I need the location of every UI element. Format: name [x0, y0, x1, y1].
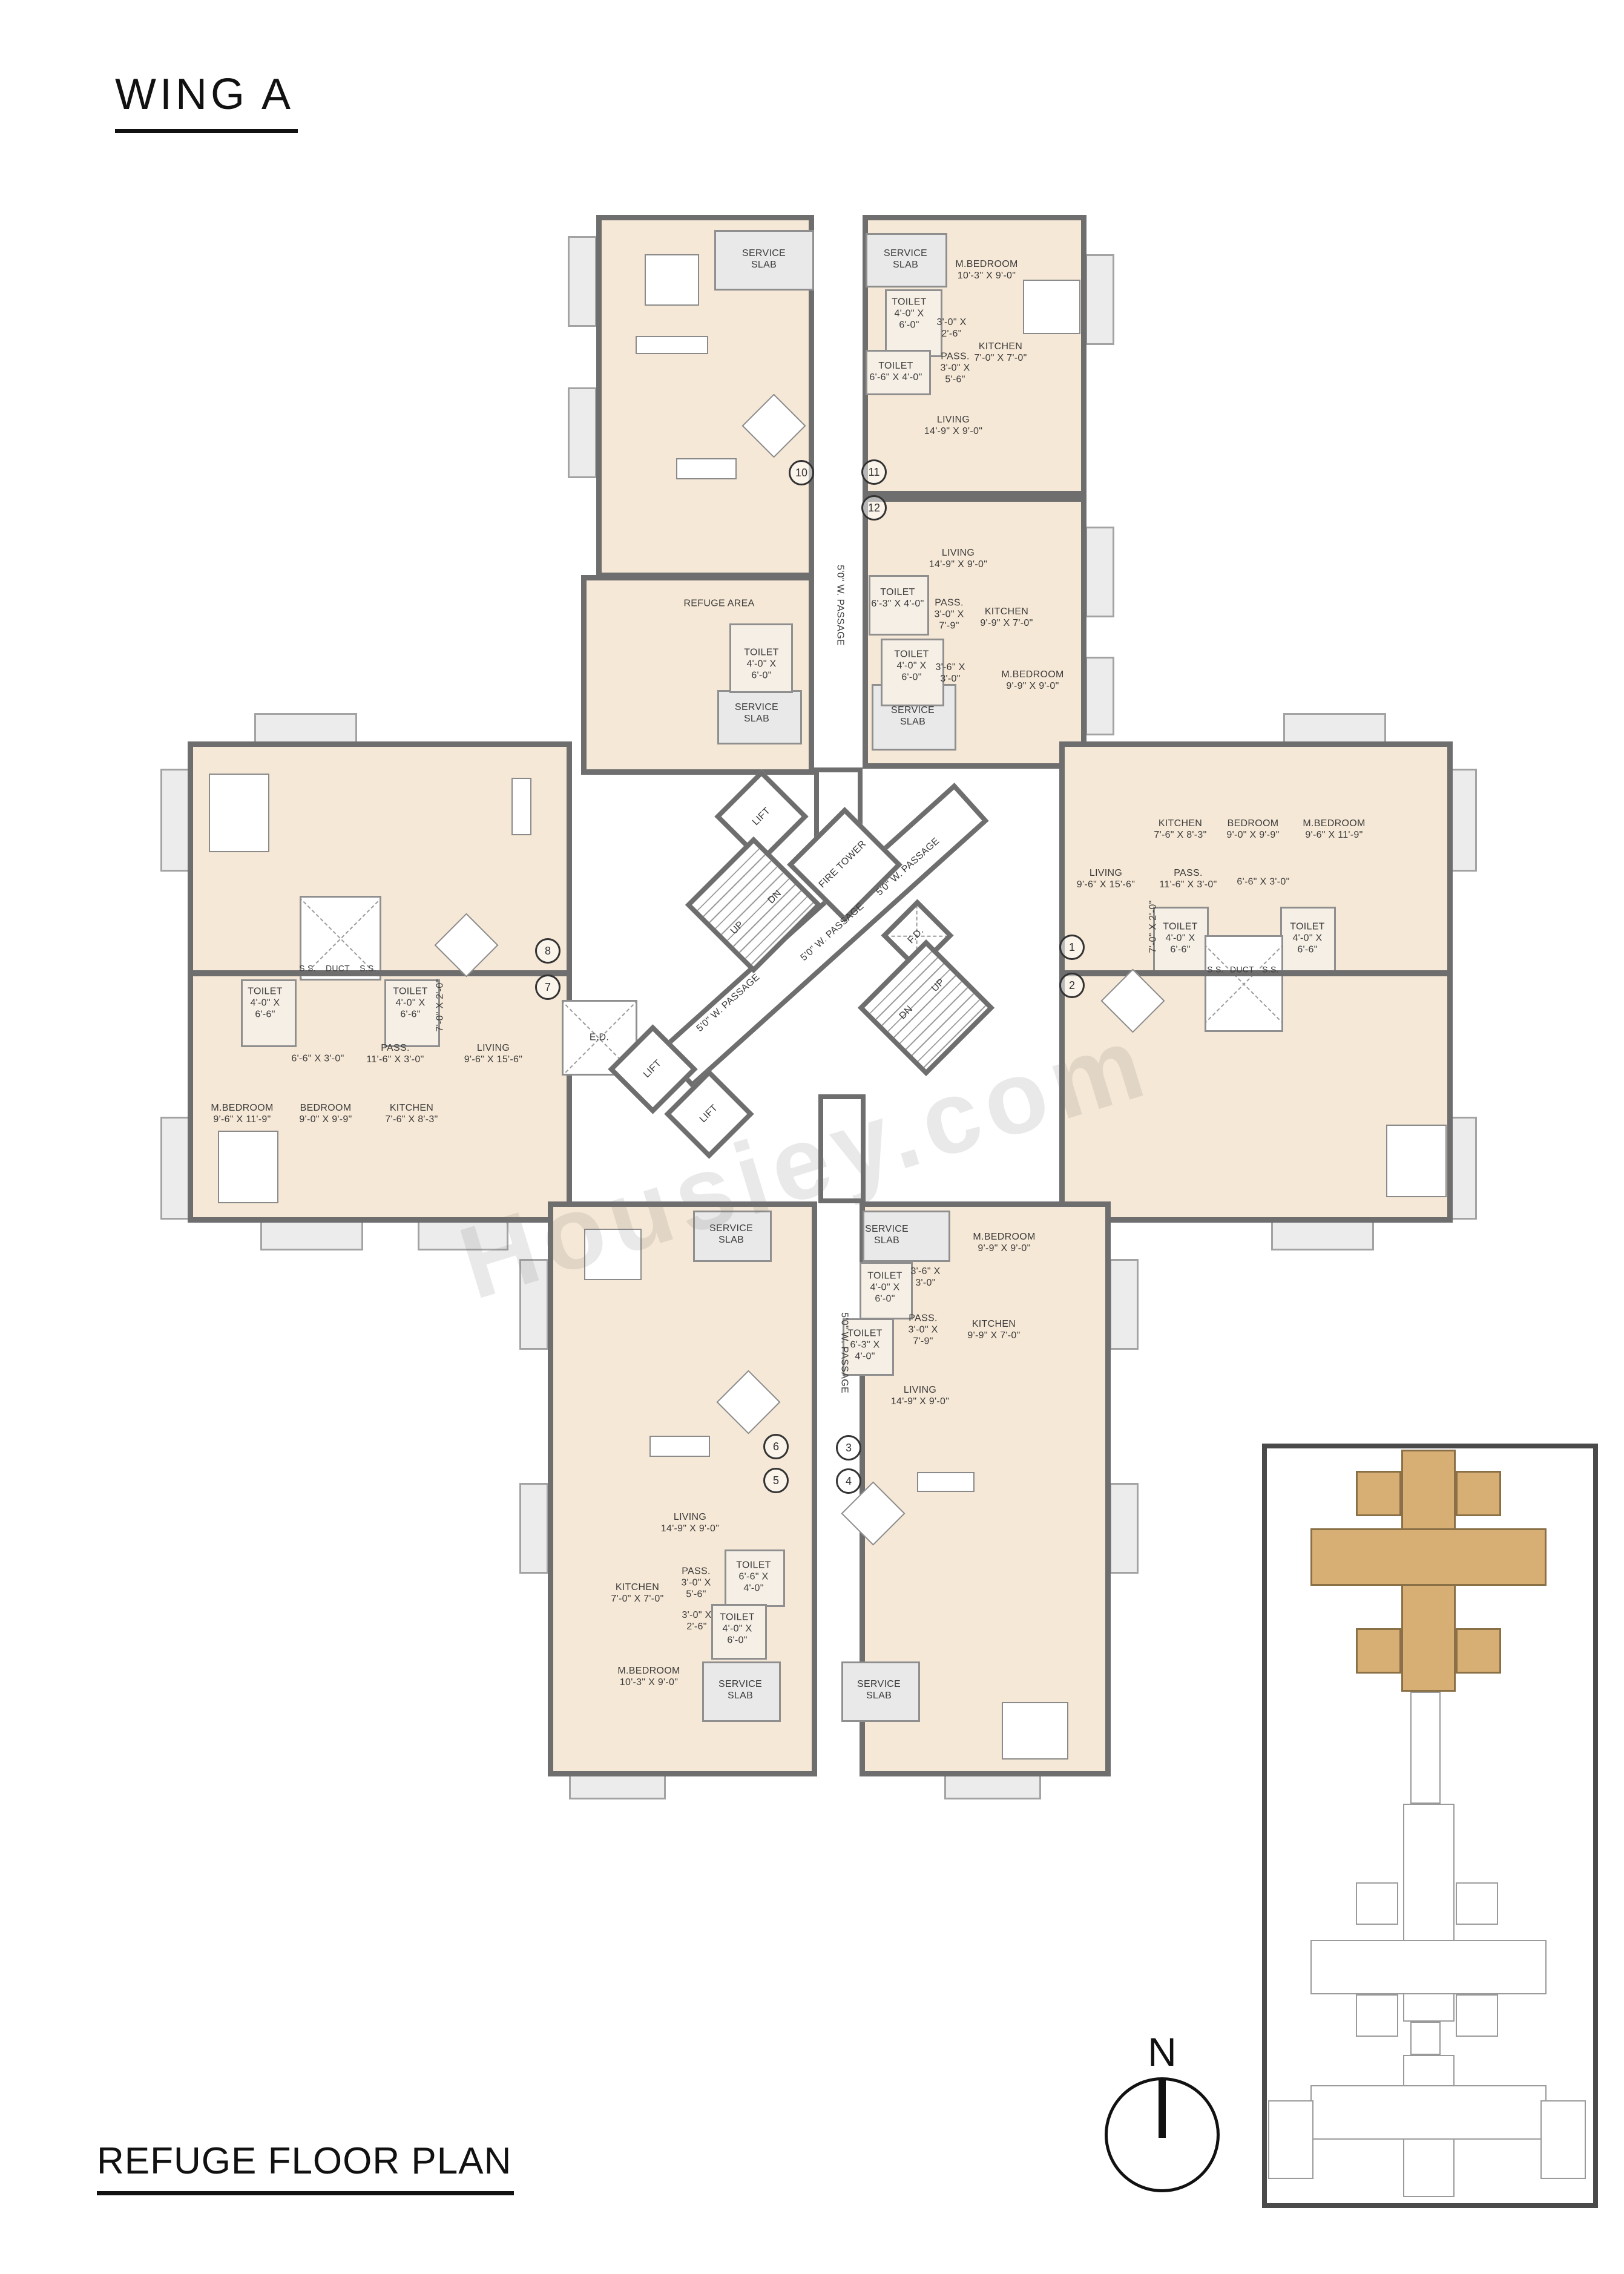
living-label: LIVING14'-9" X 9'-0"	[661, 1511, 719, 1534]
label-line: 10'-3" X 9'-0"	[955, 270, 1017, 281]
label-line: 6'-6"	[1290, 944, 1325, 956]
furniture	[209, 774, 269, 852]
balcony	[1085, 254, 1114, 345]
label-line: 3'-0"	[935, 673, 965, 685]
label-line: 5'-6"	[681, 1589, 711, 1600]
mbedroom-label: M.BEDROOM9'-6" X 11'-9"	[1303, 818, 1365, 841]
unit-number-marker: 6	[763, 1434, 789, 1459]
kitchen-label: KITCHEN7'-6" X 8'-3"	[1154, 818, 1206, 841]
label-line: 4'-0" X	[867, 1282, 902, 1293]
toilet-label: TOILET4'-0" X6'-6"	[393, 986, 428, 1020]
balcony	[260, 1220, 363, 1250]
label-line: KITCHEN	[980, 606, 1033, 617]
label-line: SLAB	[718, 1690, 762, 1701]
unit-number-marker: 11	[861, 459, 887, 485]
toilet-label: TOILET4'-0" X6'-0"	[867, 1270, 902, 1305]
service-slab-label: SERVICESLAB	[865, 1223, 909, 1246]
label-line: SERVICE	[884, 248, 927, 259]
refuge-area-label: REFUGE AREA	[683, 598, 754, 610]
keyplan-wing-outline	[1410, 1692, 1441, 1804]
label-line: KITCHEN	[967, 1318, 1020, 1330]
label-line: 4'-0" X	[894, 660, 929, 672]
label-line: 7'-6" X 8'-3"	[1154, 829, 1206, 841]
label-line: SLAB	[884, 259, 927, 271]
ss-label: S.S.	[1262, 964, 1279, 976]
unit-number-marker: 2	[1059, 973, 1085, 998]
label-line: 9'-9" X 7'-0"	[980, 617, 1033, 629]
label-line: SERVICE	[742, 248, 786, 259]
unit-number-marker: 8	[535, 938, 561, 964]
label-line: LIVING	[891, 1384, 949, 1396]
dim-label: 6'-6" X 3'-0"	[1237, 876, 1289, 888]
label-line: E.D.	[590, 1032, 609, 1043]
label-line: 6'-0"	[894, 672, 929, 683]
mbedroom-label: M.BEDROOM10'-3" X 9'-0"	[955, 258, 1017, 281]
label-line: TOILET	[248, 986, 283, 997]
dim-label: 3'-0" X2'-6"	[682, 1609, 711, 1632]
mbedroom-label: M.BEDROOM9'-9" X 9'-0"	[1001, 669, 1063, 692]
label-line: 9'-9" X 7'-0"	[967, 1330, 1020, 1341]
label-line: PASS.	[1159, 867, 1217, 879]
label-line: SERVICE	[735, 702, 778, 713]
keyplan-wing-outline	[1540, 2100, 1586, 2179]
kitchen-label: KITCHEN9'-9" X 7'-0"	[980, 606, 1033, 629]
bedroom-label: BEDROOM9'-0" X 9'-9"	[299, 1102, 352, 1125]
label-line: TOILET	[744, 647, 779, 659]
label-line: S.S.	[1207, 964, 1224, 976]
toilet-label: TOILET4'-0" X6'-0"	[720, 1612, 755, 1646]
label-line: PASS.	[934, 597, 964, 609]
label-line: 7'-9"	[934, 620, 964, 632]
label-line: 6'-6" X 4'-0"	[869, 372, 922, 383]
kitchen-label: KITCHEN7'-0" X 7'-0"	[611, 1582, 663, 1605]
label-line: SERVICE	[718, 1678, 762, 1690]
label-line: 3'-0" X	[934, 609, 964, 620]
label-line: TOILET	[393, 986, 428, 997]
label-line: TOILET	[1290, 921, 1325, 933]
service-slab-label: SERVICESLAB	[884, 248, 927, 271]
furniture	[1023, 280, 1080, 334]
furniture	[649, 1436, 710, 1457]
kitchen-label: KITCHEN9'-9" X 7'-0"	[967, 1318, 1020, 1341]
north-label: N	[1148, 2029, 1177, 2075]
plan-title-text: REFUGE FLOOR PLAN	[97, 2140, 511, 2182]
furniture	[511, 778, 531, 835]
label-line: 6'-6"	[393, 1009, 428, 1020]
label-line: LIVING	[661, 1511, 719, 1523]
label-line: PASS.	[908, 1313, 938, 1324]
passage-label: 5'0" W. PASSAGE	[835, 565, 846, 646]
label-line: TOILET	[871, 587, 924, 598]
service-slab-label: SERVICESLAB	[735, 702, 778, 725]
label-line: S.S.	[360, 963, 376, 974]
label-line: TOILET	[894, 649, 929, 660]
keyplan-wing-highlighted	[1356, 1471, 1401, 1516]
keyplan-wing-outline	[1356, 1994, 1398, 2037]
unit-number-marker: 3	[836, 1435, 861, 1461]
label-line: 4'-0" X	[1163, 933, 1198, 944]
label-line: 4'-0" X	[248, 997, 283, 1009]
label-line: 9'-9" X 9'-0"	[1001, 680, 1063, 692]
dim-label: 6'-6" X 3'-0"	[291, 1053, 344, 1065]
balcony	[160, 1117, 189, 1220]
furniture	[218, 1131, 278, 1203]
label-line: PASS.	[366, 1042, 424, 1054]
ss-label: S.S.	[1207, 964, 1224, 976]
dim-label: 7'-0" X 2'-0"	[435, 979, 446, 1031]
ed-label: E.D.	[590, 1032, 609, 1043]
label-line: 10'-3" X 9'-0"	[617, 1677, 680, 1688]
keyplan-wing-outline	[1268, 2100, 1313, 2179]
living-label: LIVING9'-6" X 15'-6"	[464, 1042, 522, 1065]
label-line: 9'-6" X 15'-6"	[464, 1054, 522, 1065]
toilet-label: TOILET4'-0" X6'-0"	[744, 647, 779, 682]
label-line: 3'-0" X	[908, 1324, 938, 1336]
label-line: TOILET	[869, 360, 922, 372]
balcony	[519, 1483, 548, 1574]
label-line: KITCHEN	[611, 1582, 663, 1593]
label-line: BEDROOM	[299, 1102, 352, 1114]
furniture	[676, 458, 737, 479]
passage-room-label: PASS.3'-0" X5'-6"	[681, 1566, 711, 1600]
label-line: M.BEDROOM	[1001, 669, 1063, 680]
label-line: 3'-0" X	[940, 363, 970, 374]
unit-number-marker: 4	[836, 1468, 861, 1494]
label-line: 9'-6" X 11'-9"	[1303, 829, 1365, 841]
label-line: SLAB	[857, 1690, 901, 1701]
label-line: DUCT	[1230, 964, 1254, 976]
toilet-label: TOILET4'-0" X6'-6"	[1163, 921, 1198, 956]
balcony	[568, 387, 597, 478]
label-line: TOILET	[720, 1612, 755, 1623]
label-line: KITCHEN	[974, 341, 1027, 352]
keyplan-wing-outline	[1310, 2085, 1547, 2140]
label-line: 14'-9" X 9'-0"	[891, 1396, 949, 1407]
label-line: 3'-6" X	[910, 1266, 940, 1277]
label-line: TOILET	[892, 297, 927, 308]
balcony	[1110, 1259, 1139, 1350]
label-line: 6'-0"	[867, 1293, 902, 1305]
label-line: M.BEDROOM	[955, 258, 1017, 270]
label-line: LIVING	[1077, 867, 1135, 879]
toilet-label: TOILET6'-6" X 4'-0"	[869, 360, 922, 383]
label-line: 4'-0" X	[1290, 933, 1325, 944]
balcony	[254, 713, 357, 743]
label-line: 14'-9" X 9'-0"	[929, 559, 987, 570]
label-line: 6'-0"	[720, 1635, 755, 1646]
north-arrow-needle	[1159, 2080, 1166, 2138]
label-line: 3'-6" X	[935, 662, 965, 673]
label-line: 6'-6" X 3'-0"	[1237, 876, 1289, 888]
living-label: LIVING14'-9" X 9'-0"	[929, 547, 987, 570]
passage-room-label: PASS.3'-0" X7'-9"	[908, 1313, 938, 1347]
furniture	[1386, 1125, 1447, 1197]
label-line: 6'-6" X	[736, 1571, 771, 1583]
dim-label: 3'-6" X3'-0"	[910, 1266, 940, 1289]
label-line: 11'-6" X 3'-0"	[366, 1054, 424, 1065]
label-line: KITCHEN	[1154, 818, 1206, 829]
label-line: 9'-9" X 9'-0"	[973, 1243, 1035, 1254]
label-line: SLAB	[742, 259, 786, 271]
keyplan-wing-highlighted	[1356, 1628, 1401, 1674]
toilet-label: TOILET4'-0" X6'-0"	[894, 649, 929, 683]
unit-number-marker: 7	[535, 974, 561, 1000]
label-line: 7'-6" X 8'-3"	[385, 1114, 438, 1125]
service-slab-label: SERVICESLAB	[742, 248, 786, 271]
label-line: SERVICE	[857, 1678, 901, 1690]
balcony	[1271, 1220, 1374, 1250]
balcony	[1110, 1483, 1139, 1574]
label-line: SLAB	[735, 713, 778, 725]
label-line: TOILET	[736, 1560, 771, 1571]
label-line: 14'-9" X 9'-0"	[924, 426, 982, 437]
label-line: 7'-0" X 7'-0"	[611, 1593, 663, 1605]
label-line: 5'-6"	[940, 374, 970, 386]
label-line: REFUGE AREA	[683, 598, 754, 610]
partition-wall	[1065, 970, 1447, 976]
living-label: LIVING9'-6" X 15'-6"	[1077, 867, 1135, 890]
balcony	[160, 769, 189, 872]
label-line: M.BEDROOM	[211, 1102, 273, 1114]
label-line: S.S.	[1262, 964, 1279, 976]
bedroom-label: BEDROOM9'-0" X 9'-9"	[1226, 818, 1279, 841]
label-line: 3'-0"	[910, 1277, 940, 1289]
label-line: 2'-6"	[682, 1621, 711, 1632]
kitchen-label: KITCHEN7'-0" X 7'-0"	[974, 341, 1027, 364]
balcony	[568, 236, 597, 327]
duct-shaft	[1205, 935, 1283, 1032]
toilet-label: TOILET6'-6" X4'-0"	[736, 1560, 771, 1594]
unit-number-marker: 5	[763, 1468, 789, 1493]
label-line: 9'-6" X 15'-6"	[1077, 879, 1135, 890]
label-line: 3'-0" X	[682, 1609, 711, 1621]
partition-wall	[193, 970, 567, 976]
label-line: 6'-6"	[1163, 944, 1198, 956]
mbedroom-label: M.BEDROOM10'-3" X 9'-0"	[617, 1665, 680, 1688]
plan-title: REFUGE FLOOR PLAN	[97, 2140, 514, 2195]
label-line: KITCHEN	[385, 1102, 438, 1114]
passage-room-label: PASS.3'-0" X5'-6"	[940, 351, 970, 386]
service-slab-label: SERVICESLAB	[857, 1678, 901, 1701]
label-line: LIVING	[464, 1042, 522, 1054]
label-line: SLAB	[865, 1235, 909, 1246]
label-line: 2'-6"	[936, 328, 966, 340]
label-line: DUCT	[326, 963, 350, 974]
label-line: PASS.	[681, 1566, 711, 1577]
toilet-label: TOILET6'-3" X4'-0"	[847, 1328, 883, 1362]
keyplan-wing-outline	[1356, 1882, 1398, 1925]
label-line: 4'-0"	[847, 1351, 883, 1362]
unit-number-marker: 1	[1059, 935, 1085, 960]
label-line: 14'-9" X 9'-0"	[661, 1523, 719, 1534]
label-line: SERVICE	[865, 1223, 909, 1235]
label-line: BEDROOM	[1226, 818, 1279, 829]
label-line: 4'-0" X	[720, 1623, 755, 1635]
label-line: SERVICE	[891, 705, 935, 716]
label-line: LIVING	[924, 414, 982, 426]
label-line: M.BEDROOM	[617, 1665, 680, 1677]
unit-number-marker: 12	[861, 495, 887, 521]
service-slab-label: SERVICESLAB	[891, 705, 935, 728]
page-title-text: WING A	[115, 70, 294, 119]
label-line: SLAB	[891, 716, 935, 728]
mbedroom-label: M.BEDROOM9'-9" X 9'-0"	[973, 1231, 1035, 1254]
label-line: 5'0" W. PASSAGE	[835, 565, 846, 646]
balcony	[1085, 527, 1114, 617]
label-line: 11'-6" X 3'-0"	[1159, 879, 1217, 890]
toilet-label: TOILET4'-0" X6'-6"	[248, 986, 283, 1020]
furniture	[1002, 1702, 1068, 1760]
label-line: 4'-0" X	[744, 659, 779, 670]
label-line: 6'-6"	[248, 1009, 283, 1020]
duct-label: DUCT	[1230, 964, 1254, 976]
furniture	[645, 254, 699, 306]
label-line: 9'-6" X 11'-9"	[211, 1114, 273, 1125]
duct-label: DUCT	[326, 963, 350, 974]
label-line: 9'-0" X 9'-9"	[1226, 829, 1279, 841]
dim-label: 7'-0" X 2'-0"	[1148, 900, 1159, 953]
living-label: LIVING14'-9" X 9'-0"	[924, 414, 982, 437]
passage-room-label: PASS.11'-6" X 3'-0"	[1159, 867, 1217, 890]
label-line: 9'-0" X 9'-9"	[299, 1114, 352, 1125]
floor-plan: WING A N Housiey.com REFUGE FLOOR PLAN S…	[0, 0, 1624, 2274]
furniture	[636, 336, 708, 354]
label-line: 3'-0" X	[681, 1577, 711, 1589]
keyplan-wing-outline	[1456, 1994, 1498, 2037]
furniture	[917, 1472, 975, 1492]
label-line: 6'-6" X 3'-0"	[291, 1053, 344, 1065]
toilet-label: TOILET4'-0" X6'-6"	[1290, 921, 1325, 956]
label-line: 7'-0" X 2'-0"	[1148, 900, 1159, 953]
label-line: LIVING	[929, 547, 987, 559]
label-line: 6'-3" X 4'-0"	[871, 598, 924, 610]
toilet-label: TOILET6'-3" X 4'-0"	[871, 587, 924, 610]
dim-label: 3'-0" X2'-6"	[936, 317, 966, 340]
passage-room-label: PASS.11'-6" X 3'-0"	[366, 1042, 424, 1065]
keyplan-wing-outline	[1456, 1882, 1498, 1925]
label-line: TOILET	[847, 1328, 883, 1339]
keyplan-wing-outline	[1410, 2022, 1441, 2055]
label-line: 7'-0" X 7'-0"	[974, 352, 1027, 364]
label-line: M.BEDROOM	[973, 1231, 1035, 1243]
label-line: 4'-0" X	[892, 308, 927, 320]
label-line: 3'-0" X	[936, 317, 966, 328]
label-line: 4'-0"	[736, 1583, 771, 1594]
label-line: TOILET	[867, 1270, 902, 1282]
keyplan-wing-highlighted	[1456, 1628, 1501, 1674]
label-line: 6'-3" X	[847, 1339, 883, 1351]
label-line: 7'-9"	[908, 1336, 938, 1347]
toilet-label: TOILET4'-0" X6'-0"	[892, 297, 927, 331]
keyplan-wing-outline	[1310, 1940, 1547, 1994]
kitchen-label: KITCHEN7'-6" X 8'-3"	[385, 1102, 438, 1125]
balcony	[1283, 713, 1386, 743]
label-line: 7'-0" X 2'-0"	[435, 979, 446, 1031]
keyplan-wing-highlighted	[1456, 1471, 1501, 1516]
label-line: TOILET	[1163, 921, 1198, 933]
keyplan-wing-highlighted	[1310, 1528, 1547, 1586]
service-slab-label: SERVICESLAB	[718, 1678, 762, 1701]
ss-label: S.S.	[299, 963, 316, 974]
living-label: LIVING14'-9" X 9'-0"	[891, 1384, 949, 1407]
unit-number-marker: 10	[789, 460, 814, 485]
balcony	[1085, 657, 1114, 735]
page-title: WING A	[115, 70, 298, 133]
label-line: 4'-0" X	[393, 997, 428, 1009]
ss-label: S.S.	[360, 963, 376, 974]
label-line: M.BEDROOM	[1303, 818, 1365, 829]
label-line: 6'-0"	[892, 320, 927, 331]
mbedroom-label: M.BEDROOM9'-6" X 11'-9"	[211, 1102, 273, 1125]
dim-label: 3'-6" X3'-0"	[935, 662, 965, 685]
label-line: PASS.	[940, 351, 970, 363]
label-line: S.S.	[299, 963, 316, 974]
label-line: 6'-0"	[744, 670, 779, 682]
passage-room-label: PASS.3'-0" X7'-9"	[934, 597, 964, 632]
